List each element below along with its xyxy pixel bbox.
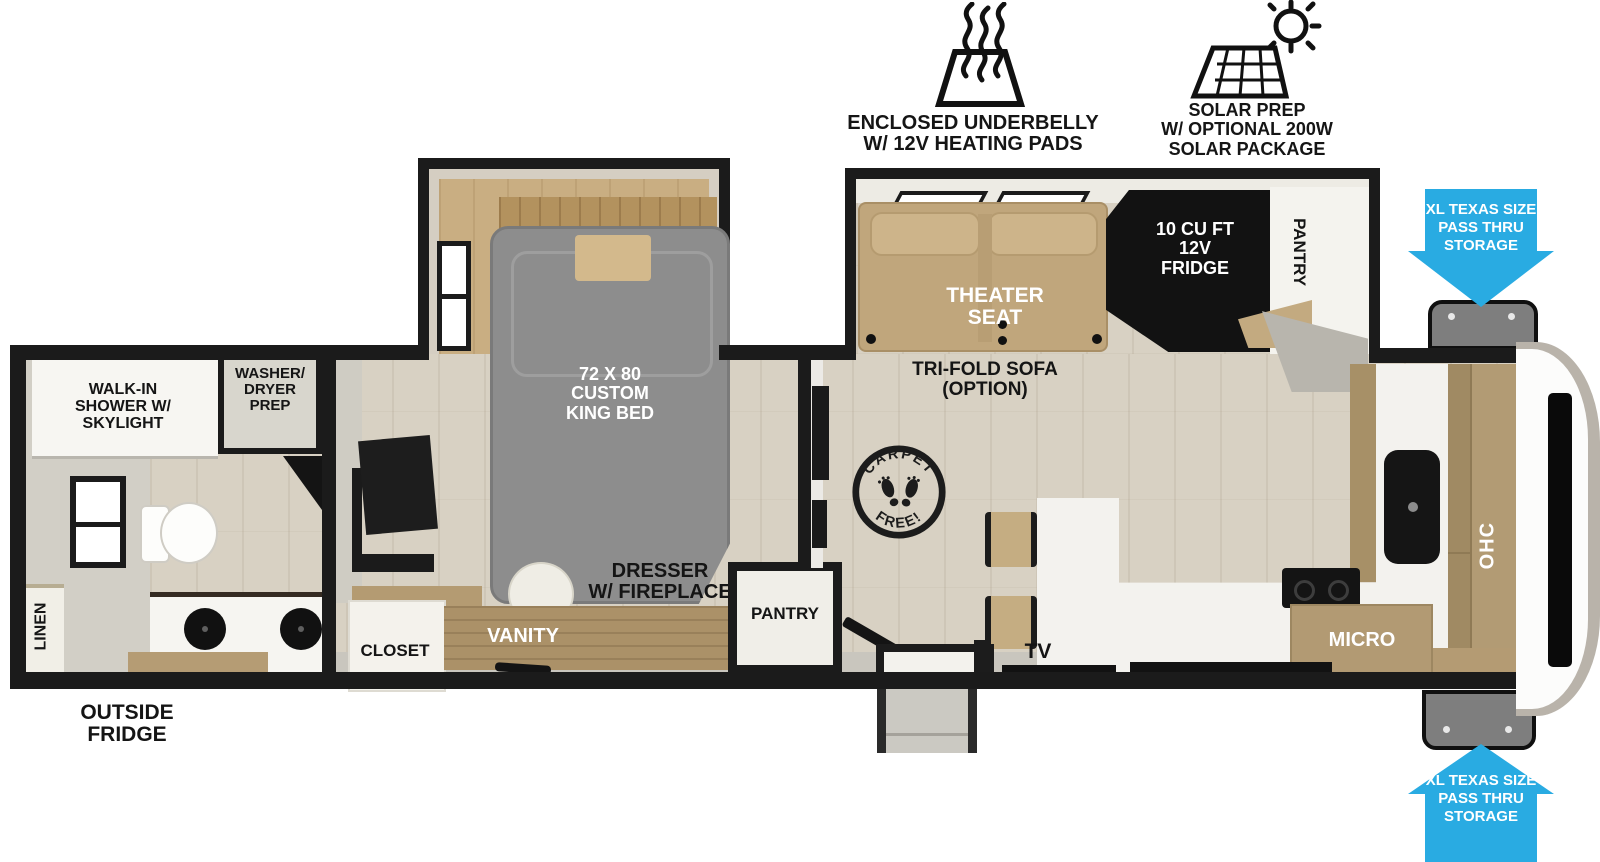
bathroom-sink-left [184, 608, 226, 650]
bathroom-sink-right [280, 608, 322, 650]
underbelly-label-line2: W/ 12V HEATING PADS [833, 134, 1113, 155]
heating-pads-icon [925, 2, 1035, 110]
rear-cap-trim [1516, 342, 1600, 716]
bed-pillow [575, 235, 651, 281]
shoe-print-icon [877, 474, 900, 508]
theater-seat-label: THEATER SEAT [925, 285, 1065, 330]
living-pantry-label: PANTRY [1290, 202, 1308, 302]
faucet-icon [1408, 502, 1418, 512]
trifold-sofa-label: TRI-FOLD SOFA (OPTION) [900, 360, 1070, 401]
micro-label: MICRO [1300, 630, 1424, 651]
ohc-label: OHC [1477, 498, 1498, 594]
bedroom-window-left [437, 241, 471, 351]
floorplan-diagram: ENCLOSED UNDERBELLY W/ 12V HEATING PADS … [0, 0, 1600, 862]
bath-mat [128, 652, 268, 672]
exterior-wall-left [10, 345, 26, 689]
entry-steps [877, 689, 977, 753]
king-bed-label: 72 X 80 CUSTOM KING BED [520, 365, 700, 423]
solar-label: SOLAR PREP W/ OPTIONAL 200W SOLAR PACKAG… [1127, 101, 1367, 159]
exterior-wall-top-left [10, 345, 429, 360]
shoe-print-icon [899, 474, 921, 508]
tv-label: TV [1008, 641, 1068, 663]
closet-label: CLOSET [350, 642, 440, 660]
exterior-wall-top-mid [719, 345, 856, 360]
hall-tv [812, 386, 829, 480]
bathroom-window [70, 476, 126, 568]
underbelly-label: ENCLOSED UNDERBELLY W/ 12V HEATING PADS [833, 113, 1113, 156]
bar-stool [985, 512, 1037, 567]
exterior-wall-top-right [1369, 348, 1533, 363]
bedroom-tv-bracket [352, 468, 362, 556]
rear-cap [1516, 349, 1588, 709]
kitchen-sink [1384, 450, 1440, 564]
bath-bedroom-wall [322, 356, 336, 674]
kitchen-cabinet-side [1350, 364, 1376, 582]
underbelly-label-line1: ENCLOSED UNDERBELLY [833, 113, 1113, 134]
bedroom-pantry-label: PANTRY [733, 605, 837, 623]
washer-dryer-label: WASHER/ DRYER PREP [222, 366, 318, 414]
bedroom-tv-shelf [352, 554, 434, 572]
solar-label-line2: W/ OPTIONAL 200W [1127, 120, 1367, 139]
outside-fridge-label: OUTSIDE FRIDGE [52, 702, 202, 747]
fridge-label: 10 CU FT 12V FRIDGE [1140, 220, 1250, 278]
pass-thru-label-top: XL TEXAS SIZE PASS THRU STORAGE [1408, 201, 1554, 255]
hall-cabinet-panel [812, 500, 827, 548]
solar-label-line1: SOLAR PREP [1127, 101, 1367, 120]
pass-thru-label-bottom: XL TEXAS SIZE PASS THRU STORAGE [1408, 772, 1554, 826]
bedroom-living-wall [798, 356, 811, 568]
carpet-free-stamp: CARPET FREE! [851, 444, 947, 540]
solar-label-line3: SOLAR PACKAGE [1127, 140, 1367, 159]
bedroom-tv [358, 435, 438, 535]
vanity-label: VANITY [458, 626, 588, 647]
dresser-fireplace-label: DRESSER W/ FIREPLACE [575, 561, 745, 604]
toilet-bowl [160, 502, 218, 564]
rear-window [1548, 393, 1572, 667]
shower-label: WALK-IN SHOWER W/ SKYLIGHT [48, 381, 198, 432]
solar-prep-icon [1185, 0, 1335, 102]
cooktop [1282, 568, 1360, 608]
linen-label: LINEN [32, 577, 49, 677]
exterior-wall-bottom [10, 672, 1533, 689]
cupholder-icon [998, 336, 1007, 345]
